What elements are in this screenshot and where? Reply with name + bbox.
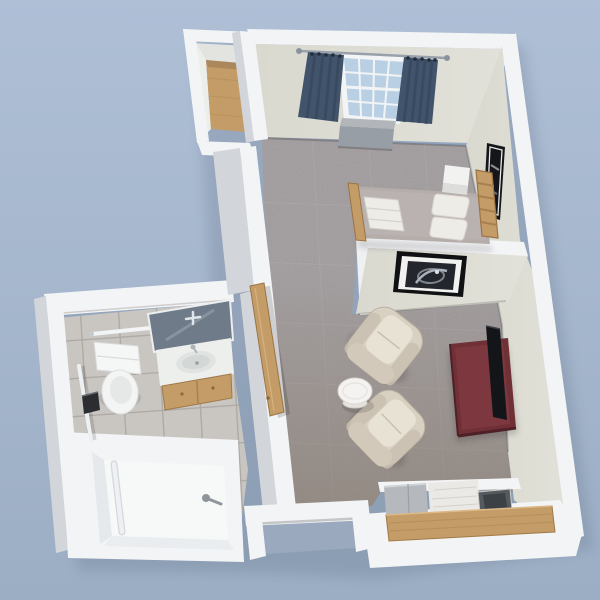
grab-bar-post-left bbox=[90, 332, 94, 336]
radiator bbox=[338, 118, 396, 150]
pillow-bottom bbox=[430, 217, 467, 240]
cabinet-knob-right bbox=[211, 386, 214, 389]
bathroom bbox=[34, 280, 252, 562]
mini-fridge bbox=[384, 483, 428, 515]
radiator-front bbox=[338, 126, 394, 149]
rod-finial-left bbox=[296, 48, 302, 54]
bathtub-shower bbox=[62, 432, 244, 562]
rod-finial-right bbox=[444, 55, 450, 61]
nightstand-top bbox=[443, 165, 470, 186]
floorplan-svg bbox=[0, 0, 600, 600]
art-glint bbox=[435, 270, 439, 274]
floorplan-render bbox=[0, 0, 600, 600]
side-table bbox=[338, 378, 374, 413]
art-image bbox=[405, 261, 456, 290]
pillow-top bbox=[432, 194, 469, 218]
cabinet-seam bbox=[197, 381, 198, 404]
folded-blanket bbox=[364, 197, 404, 231]
tv-console-group bbox=[448, 326, 518, 442]
sink-drain bbox=[195, 361, 199, 365]
door-knob bbox=[266, 396, 270, 400]
living-wall-art bbox=[393, 251, 467, 297]
cabinet-knob-left bbox=[180, 392, 183, 395]
kitchen-sink-basin bbox=[483, 493, 507, 509]
nightstand bbox=[442, 165, 470, 195]
